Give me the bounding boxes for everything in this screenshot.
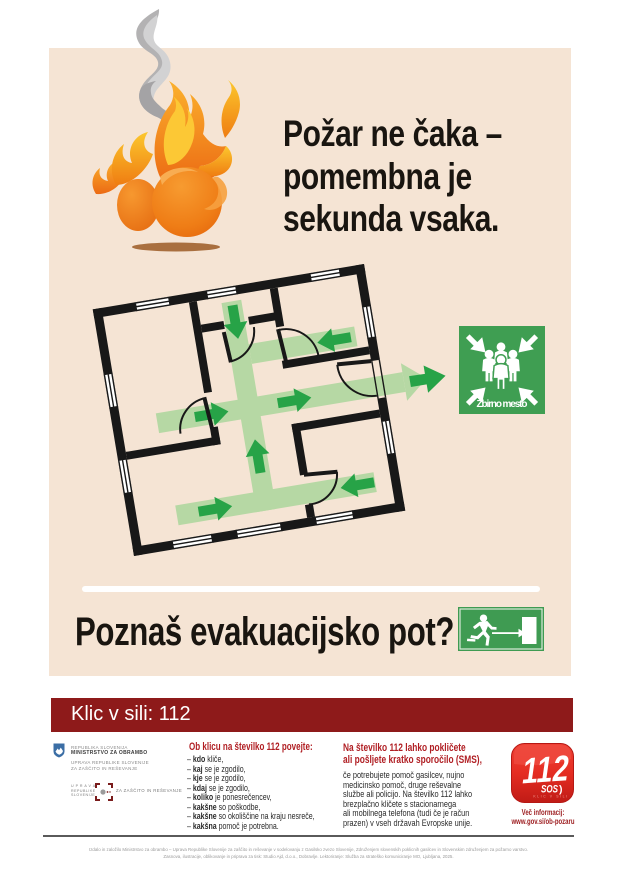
svg-text:Zbirno mesto: Zbirno mesto	[477, 399, 528, 410]
svg-text:KLIC V SILI: KLIC V SILI	[533, 795, 568, 799]
